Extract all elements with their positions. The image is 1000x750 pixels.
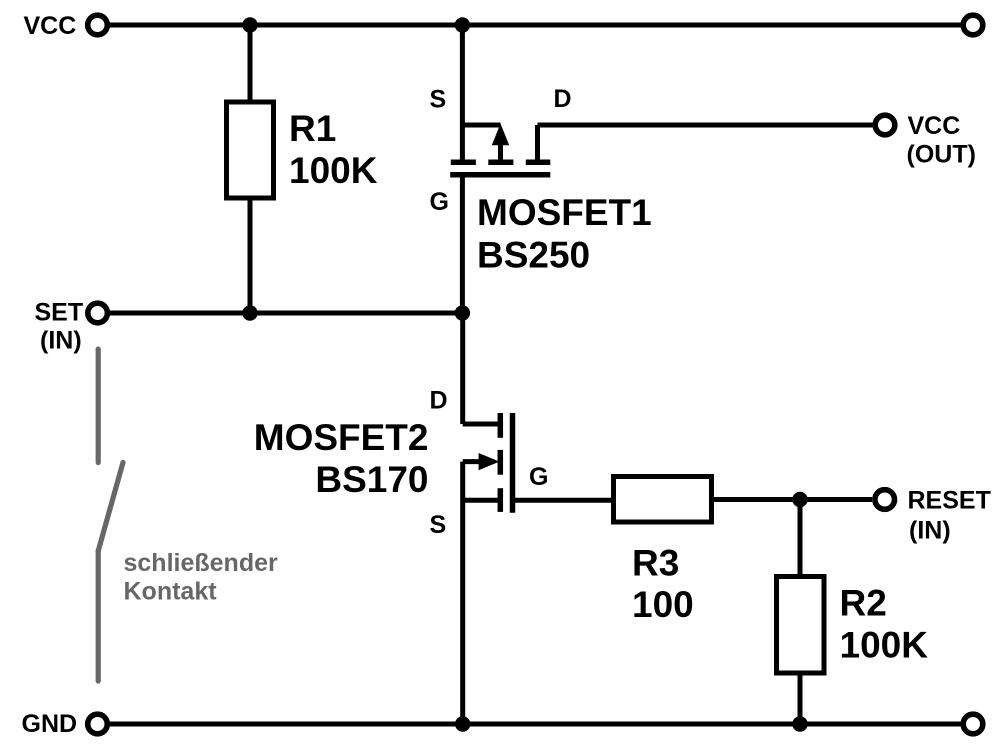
svg-text:S: S (430, 511, 447, 539)
svg-text:SET: SET (35, 299, 84, 327)
svg-text:MOSFET2: MOSFET2 (254, 417, 429, 458)
svg-text:100: 100 (632, 584, 694, 625)
svg-text:GND: GND (22, 710, 78, 738)
svg-text:R2: R2 (840, 583, 887, 624)
svg-text:(OUT): (OUT) (907, 141, 976, 169)
svg-text:D: D (430, 386, 448, 414)
svg-text:S: S (430, 86, 447, 114)
svg-text:100K: 100K (289, 150, 378, 191)
svg-text:R1: R1 (289, 108, 336, 149)
svg-text:D: D (554, 85, 572, 113)
svg-text:Kontakt: Kontakt (124, 577, 218, 605)
svg-text:RESET: RESET (908, 487, 991, 515)
svg-text:VCC: VCC (24, 12, 77, 40)
svg-text:schließender: schließender (124, 549, 278, 577)
svg-text:VCC: VCC (908, 112, 961, 140)
svg-text:G: G (529, 463, 548, 491)
svg-text:BS170: BS170 (315, 459, 428, 500)
svg-text:MOSFET1: MOSFET1 (477, 192, 652, 233)
svg-text:G: G (430, 188, 449, 216)
svg-text:R3: R3 (632, 543, 679, 584)
svg-text:BS250: BS250 (477, 235, 590, 276)
svg-text:(IN): (IN) (40, 327, 82, 355)
svg-text:100K: 100K (840, 625, 929, 666)
svg-text:(IN): (IN) (909, 517, 951, 545)
